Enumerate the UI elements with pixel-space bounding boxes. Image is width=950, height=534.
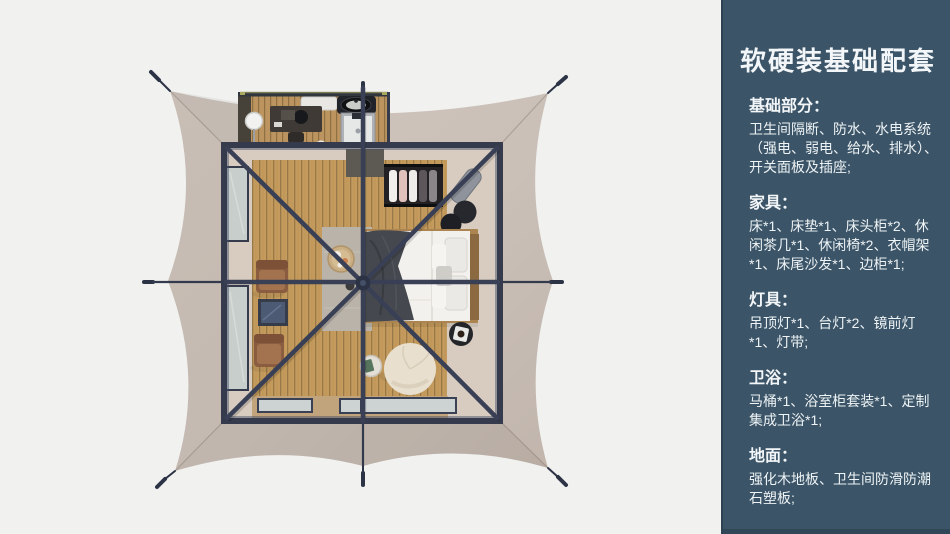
garment xyxy=(399,170,407,202)
bottom-windows xyxy=(252,396,456,418)
spec-heading: 基础部分： xyxy=(749,96,942,118)
spec-body: 床*1、床垫*1、床头柜*2、休闲茶几*1、休闲椅*2、衣帽架*1、床尾沙发*1… xyxy=(749,217,941,274)
spec-body: 马桶*1、浴室柜套装*1、定制集成卫浴*1; xyxy=(749,392,941,430)
tea-table xyxy=(258,299,288,326)
headboard xyxy=(470,234,479,320)
garment xyxy=(389,170,397,202)
spec-section: 卫浴： 马桶*1、浴室柜套装*1、定制集成卫浴*1; xyxy=(749,368,942,430)
spec-section: 地面： 强化木地板、卫生间防滑防潮石塑板; xyxy=(749,446,942,508)
spec-heading: 家具： xyxy=(749,193,942,215)
garment xyxy=(409,170,417,202)
spec-section: 灯具： 吊顶灯*1、台灯*2、镜前灯*1、灯带; xyxy=(749,290,942,352)
clothes-rack xyxy=(384,164,443,207)
spec-body: 卫生间隔断、防水、水电系统（强电、弱电、给水、排水）、开关面板及插座; xyxy=(749,120,941,177)
tent-top-view-render xyxy=(0,0,721,534)
spec-heading: 灯具： xyxy=(749,290,942,312)
spec-heading: 地面： xyxy=(749,446,942,468)
spec-sections: 基础部分： 卫生间隔断、防水、水电系统（强电、弱电、给水、排水）、开关面板及插座… xyxy=(749,96,942,508)
canvas-shade-bottom xyxy=(175,421,548,471)
bathroom xyxy=(238,92,390,148)
garment xyxy=(429,170,437,202)
center-hub xyxy=(356,276,371,291)
side-table-black xyxy=(449,322,473,346)
guy-line-top-left xyxy=(151,72,170,91)
guy-line-bottom-right xyxy=(548,468,566,485)
spec-body: 吊顶灯*1、台灯*2、镜前灯*1、灯带; xyxy=(749,314,941,352)
bathroom-right-wall xyxy=(387,92,390,146)
sidebar-title: 软硬装基础配套 xyxy=(740,44,940,79)
garments xyxy=(389,170,437,202)
bed xyxy=(362,229,479,327)
spec-body: 强化木地板、卫生间防滑防潮石塑板; xyxy=(749,470,941,508)
vanity-stool xyxy=(288,132,304,143)
lounge-chair-top xyxy=(252,260,288,298)
spec-section: 基础部分： 卫生间隔断、防水、水电系统（强电、弱电、给水、排水）、开关面板及插座… xyxy=(749,96,942,177)
shower-tray xyxy=(341,113,375,145)
hinge-left xyxy=(240,92,245,95)
spec-sidebar: 软硬装基础配套 基础部分： 卫生间隔断、防水、水电系统（强电、弱电、给水、排水）… xyxy=(721,0,950,534)
spec-section: 家具： 床*1、床垫*1、床头柜*2、休闲茶几*1、休闲椅*2、衣帽架*1、床尾… xyxy=(749,193,942,274)
page: 软硬装基础配套 基础部分： 卫生间隔断、防水、水电系统（强电、弱电、给水、排水）… xyxy=(0,0,950,534)
hinge-right xyxy=(382,92,387,95)
spec-heading: 卫浴： xyxy=(749,368,942,390)
sink-basin xyxy=(337,96,376,114)
garment xyxy=(419,170,427,202)
guy-line-bottom-left xyxy=(157,471,175,487)
guy-line-top-right xyxy=(548,77,566,93)
floor-plan-panel xyxy=(0,0,721,534)
